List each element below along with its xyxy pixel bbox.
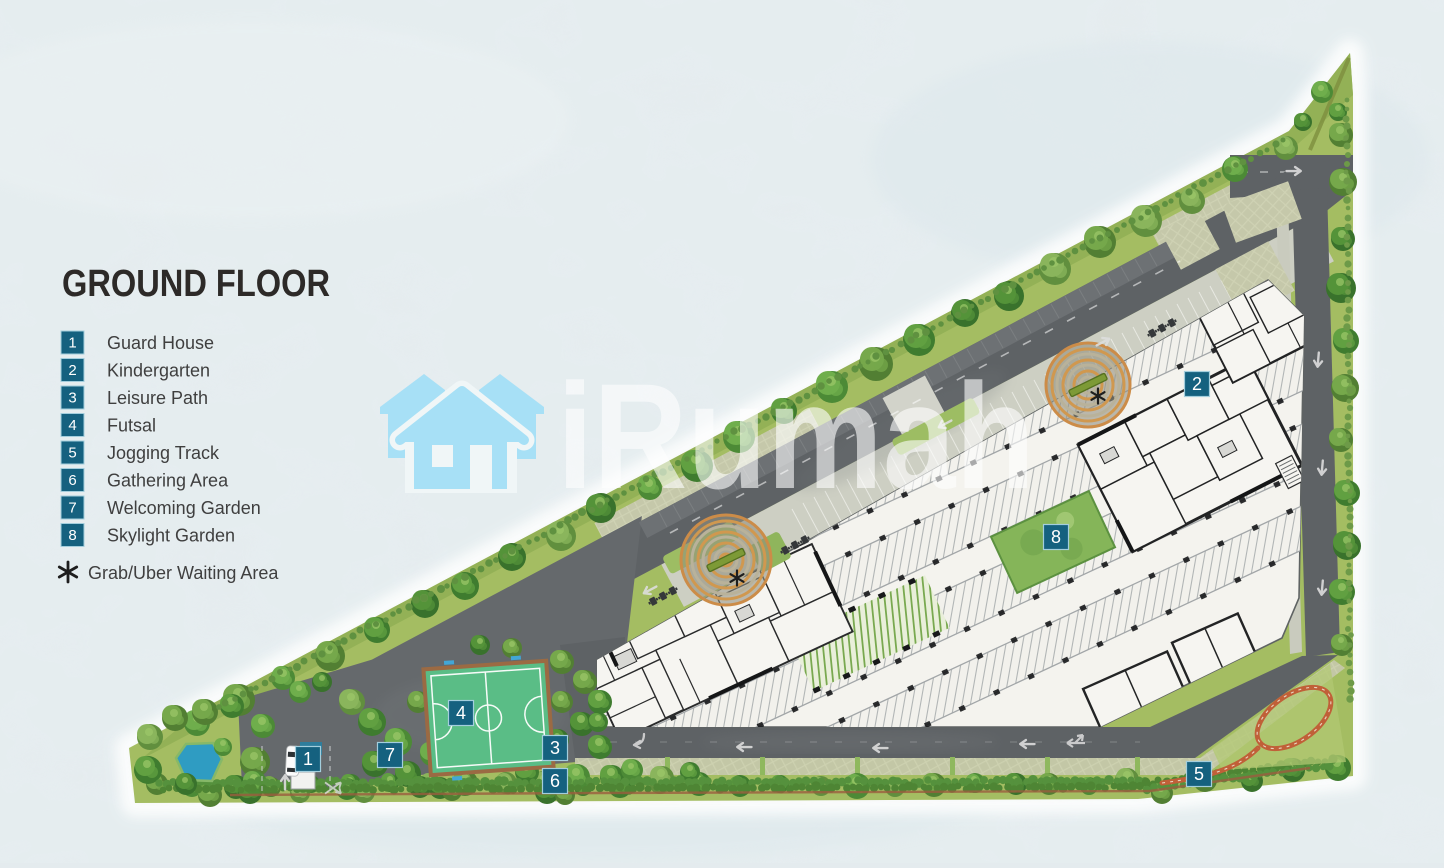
svg-text:7: 7 (68, 500, 76, 517)
svg-text:Jogging Track: Jogging Track (107, 443, 220, 463)
svg-text:Guard House: Guard House (107, 333, 214, 353)
svg-text:4: 4 (456, 703, 466, 723)
svg-text:3: 3 (550, 738, 560, 758)
svg-text:Welcoming Garden: Welcoming Garden (107, 498, 261, 518)
svg-text:6: 6 (68, 472, 76, 489)
svg-text:3: 3 (68, 390, 76, 407)
svg-text:4: 4 (68, 417, 76, 434)
svg-text:1: 1 (68, 335, 76, 352)
svg-text:2: 2 (1192, 374, 1202, 394)
svg-text:8: 8 (1051, 527, 1061, 547)
svg-text:6: 6 (550, 771, 560, 791)
svg-text:Gathering Area: Gathering Area (107, 471, 229, 491)
svg-text:7: 7 (385, 745, 395, 765)
svg-text:5: 5 (68, 445, 76, 462)
svg-text:Kindergarten: Kindergarten (107, 361, 210, 381)
svg-text:Futsal: Futsal (107, 416, 156, 436)
svg-text:5: 5 (1194, 764, 1204, 784)
svg-text:iRumah: iRumah (557, 352, 1035, 520)
svg-text:Skylight Garden: Skylight Garden (107, 526, 235, 546)
svg-text:2: 2 (68, 362, 76, 379)
svg-text:8: 8 (68, 527, 76, 544)
svg-text:GROUND FLOOR: GROUND FLOOR (62, 263, 330, 305)
svg-text:1: 1 (303, 749, 313, 769)
svg-text:Grab/Uber Waiting Area: Grab/Uber Waiting Area (88, 563, 279, 583)
svg-text:Leisure Path: Leisure Path (107, 388, 208, 408)
